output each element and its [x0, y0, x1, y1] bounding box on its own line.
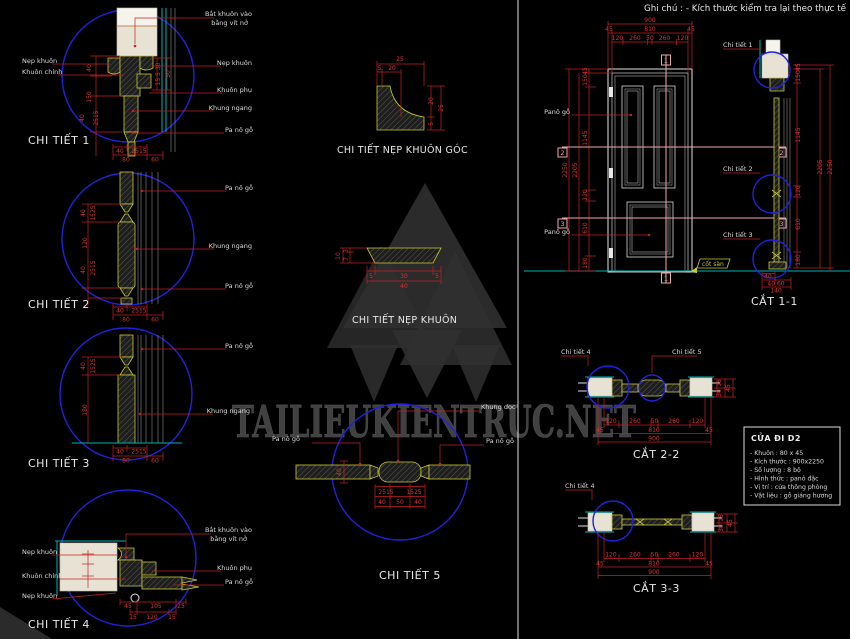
dim: 2205	[817, 159, 824, 174]
dim: 45	[596, 561, 604, 568]
dim: 120	[677, 35, 689, 42]
door-detail-drawing: TAILIEUKIENTRUC.NET Ghi chú : - Kích thư…	[0, 0, 850, 639]
section-marker-3b: 3	[779, 220, 783, 228]
dim: 260	[668, 552, 680, 559]
detail-2-title: CHI TIẾT 2	[28, 297, 90, 311]
title-block-row: - Khuôn : 80 x 45	[750, 449, 803, 457]
label-khung-ngang: Khung ngang	[209, 104, 252, 112]
detail-5-linework	[296, 462, 470, 482]
section-marker-1: 1	[664, 57, 668, 65]
dim: 10	[335, 252, 342, 260]
callout-chi-tiet-2: Chi tiết 2	[723, 165, 753, 173]
detail-5-title: CHI TIẾT 5	[379, 568, 441, 582]
dim: 1525	[90, 358, 97, 373]
dim: 50	[165, 70, 172, 78]
dim: 900	[648, 569, 660, 576]
dim: 50	[651, 552, 659, 559]
dim: 15	[168, 614, 176, 621]
dim: 45	[705, 561, 713, 568]
callout-chi-tiet-1: Chi tiết 1	[723, 41, 753, 49]
dim: 40	[764, 274, 772, 281]
dim: 260	[629, 35, 641, 42]
dim: 150	[795, 70, 802, 82]
dim: 45	[705, 427, 713, 434]
dim: 15	[716, 379, 723, 387]
dim: 25	[438, 104, 445, 112]
cat11-title: CẮT 1-1	[751, 294, 798, 308]
dim: 40	[116, 449, 124, 456]
dim: 40	[336, 468, 343, 476]
label-pano-go: Panô gỗ	[544, 107, 570, 116]
nep-title: CHI TIẾT NẸP KHUÔN	[352, 314, 457, 326]
dim: 900	[648, 436, 660, 443]
dim: 40	[414, 499, 422, 506]
callout-chi-tiet-3: Chi tiết 3	[723, 231, 753, 239]
dim: 810	[648, 561, 660, 568]
dim: 2515	[131, 449, 146, 456]
callout-chi-tiet-4: Chi tiết 4	[565, 482, 595, 490]
label-pano-go-2: Pa nô gỗ	[225, 281, 253, 290]
section-marker-1b: 1	[664, 275, 668, 283]
callout-chi-tiet-4: Chi tiết 4	[561, 348, 591, 356]
dim: 180	[82, 404, 89, 416]
dim: 50	[396, 499, 404, 506]
section-marker-2: 2	[560, 149, 564, 157]
cat33-title: CẮT 3-3	[633, 581, 680, 595]
dim: 120	[612, 35, 624, 42]
dim: 40	[86, 64, 93, 72]
dim: 260	[629, 418, 641, 425]
dim: 60	[151, 317, 159, 324]
dim: 2515	[93, 110, 100, 125]
label-nep-khuon: Nẹp khuôn	[22, 548, 57, 556]
label-bat-khuon: Bắt khuôn vào	[205, 9, 252, 18]
dim: 50	[646, 35, 654, 42]
dim: 80	[122, 157, 130, 164]
dim: 180	[795, 254, 802, 266]
label-bat-khuon: Bắt khuôn vào	[205, 525, 252, 534]
dim: 120	[605, 552, 617, 559]
cat22-linework	[578, 377, 720, 397]
callout-chi-tiet-5: Chi tiết 5	[672, 348, 702, 356]
dim: 810	[644, 26, 656, 33]
dim: 2515	[131, 308, 146, 315]
hinge	[609, 168, 613, 178]
dim: 45	[596, 427, 604, 434]
label-nep-khuon-2: Nẹp khuôn	[22, 592, 57, 600]
dim: 30	[400, 273, 408, 280]
dim: 45	[605, 26, 613, 33]
dim: 610	[582, 222, 589, 234]
dim: 2205	[572, 162, 579, 177]
cot-san-label: cốt sàn	[702, 261, 724, 268]
dim: 45	[727, 519, 734, 527]
dim: 45	[725, 384, 732, 392]
label-pano-go-right: Pa nô gỗ	[486, 436, 514, 445]
label-khung-doc: Khung dọc	[481, 403, 516, 411]
dim: 15	[129, 614, 137, 621]
label-khuon-chinh: Khuôn chính	[22, 572, 62, 580]
hinge	[609, 248, 613, 258]
dim: 260	[629, 552, 641, 559]
dim: 1525	[90, 205, 97, 220]
label-pano-go: Pa nô gỗ	[225, 125, 253, 134]
dim: 2250	[562, 162, 569, 177]
dim: 60	[151, 157, 159, 164]
hinge	[609, 87, 613, 97]
dim: 7	[343, 257, 350, 261]
dim: 45	[582, 67, 589, 75]
dim: 40 60	[767, 281, 784, 288]
dim: 5	[428, 122, 435, 126]
title-block-row: - Hình thức : panô đặc	[750, 475, 819, 483]
dim: 40	[80, 209, 87, 217]
dim: 120	[795, 185, 802, 197]
label-khung-ngang: Khung ngang	[207, 407, 250, 415]
label-khuon-phu: Khuôn phụ	[217, 564, 252, 572]
dim: 80	[122, 458, 130, 465]
nep-khuon-profile	[367, 248, 441, 263]
cat22-title: CẮT 2-2	[633, 447, 680, 461]
dim: 1145	[582, 130, 589, 145]
dim: 120	[692, 552, 704, 559]
goc-title: CHI TIẾT NẸP KHUÔN GÓC	[337, 144, 468, 156]
dim: 810	[648, 427, 660, 434]
dim: 2250	[827, 159, 834, 174]
label-khuon-phu: Khuôn phụ	[217, 86, 252, 94]
label-pano-go-left: Pa nô gỗ	[272, 434, 300, 443]
label-nep-khuon-r: Nẹp khuôn	[217, 59, 252, 67]
dim: 30	[718, 524, 725, 532]
detail-4-title: CHI TIẾT 4	[28, 617, 90, 631]
label-pano-go: Pa nô gỗ	[225, 341, 253, 350]
dim: 3	[343, 249, 350, 253]
label-khuon-chinh: Khuôn chính	[22, 68, 62, 76]
dim: 40	[79, 114, 86, 122]
dim: 50	[651, 418, 659, 425]
section-marker-2b: 2	[779, 149, 783, 157]
dim: 40	[80, 266, 87, 274]
dim: 150	[86, 91, 93, 103]
dim: 40	[378, 499, 386, 506]
section-marker-3: 3	[560, 220, 564, 228]
dim: 2515	[131, 148, 146, 155]
label-pano-go: Pa nô gỗ	[225, 577, 253, 586]
cad-drawing-canvas: TAILIEUKIENTRUC.NET Ghi chú : - Kích thư…	[0, 0, 850, 639]
title-block-row: - Kích thước : 900x2250	[750, 458, 824, 466]
dim: 40	[116, 308, 124, 315]
dim: 120	[582, 189, 589, 201]
dim: 610	[795, 218, 802, 230]
dim: 40	[80, 362, 87, 370]
note-ghi-chu: Ghi chú : - Kích thước kiểm tra lại theo…	[644, 3, 846, 14]
label-bat-khuon-2: bằng vít nở	[210, 534, 247, 543]
dim: 20	[428, 97, 435, 105]
dim: 30	[716, 389, 723, 397]
dim: 260	[659, 35, 671, 42]
dim: 5	[378, 65, 382, 72]
dim: 120	[605, 418, 617, 425]
label-bat-khuon-2: bằng vít nở	[211, 18, 248, 27]
dim: 25	[177, 603, 185, 610]
dim: 2515	[90, 260, 97, 275]
label-khung-ngang: Khung ngang	[209, 242, 252, 250]
dim: 25	[396, 56, 404, 63]
dim: 180	[582, 257, 589, 269]
dim: 1145	[795, 127, 802, 142]
dim: 5	[369, 273, 373, 280]
title-block-row: - Vật liệu : gỗ giáng hương	[750, 491, 832, 500]
dim: 40	[400, 283, 408, 290]
dim: 15	[718, 514, 725, 522]
label-nep-khuon: Nẹp khuôn	[22, 57, 57, 65]
dim: 260	[668, 418, 680, 425]
dim: 105	[150, 603, 162, 610]
dim: 80	[122, 317, 130, 324]
detail-2-linework	[118, 172, 158, 304]
dim: 2515	[378, 489, 393, 496]
detail-1-title: CHI TIẾT 1	[28, 133, 90, 147]
dim: 150	[582, 74, 589, 86]
dim: 40	[116, 148, 124, 155]
label-pano-go: Pa nô gỗ	[225, 183, 253, 192]
dim: 5	[435, 273, 439, 280]
title-block-row: - Vị trí : cửa thông phòng	[750, 483, 827, 491]
dim: 45	[124, 603, 132, 610]
dim: 60	[151, 458, 159, 465]
dim: 120	[146, 614, 158, 621]
dim: 120	[692, 418, 704, 425]
detail-3-title: CHI TIẾT 3	[28, 456, 90, 470]
title-block-row: - Số lượng : 8 bộ	[750, 466, 801, 474]
dim: 140	[770, 288, 782, 295]
dim: 900	[644, 17, 656, 24]
dim: 45	[687, 26, 695, 33]
dim: 120	[82, 237, 89, 249]
dim: 20	[388, 65, 396, 72]
dim: 1525	[406, 489, 421, 496]
dim: 45	[795, 63, 802, 71]
